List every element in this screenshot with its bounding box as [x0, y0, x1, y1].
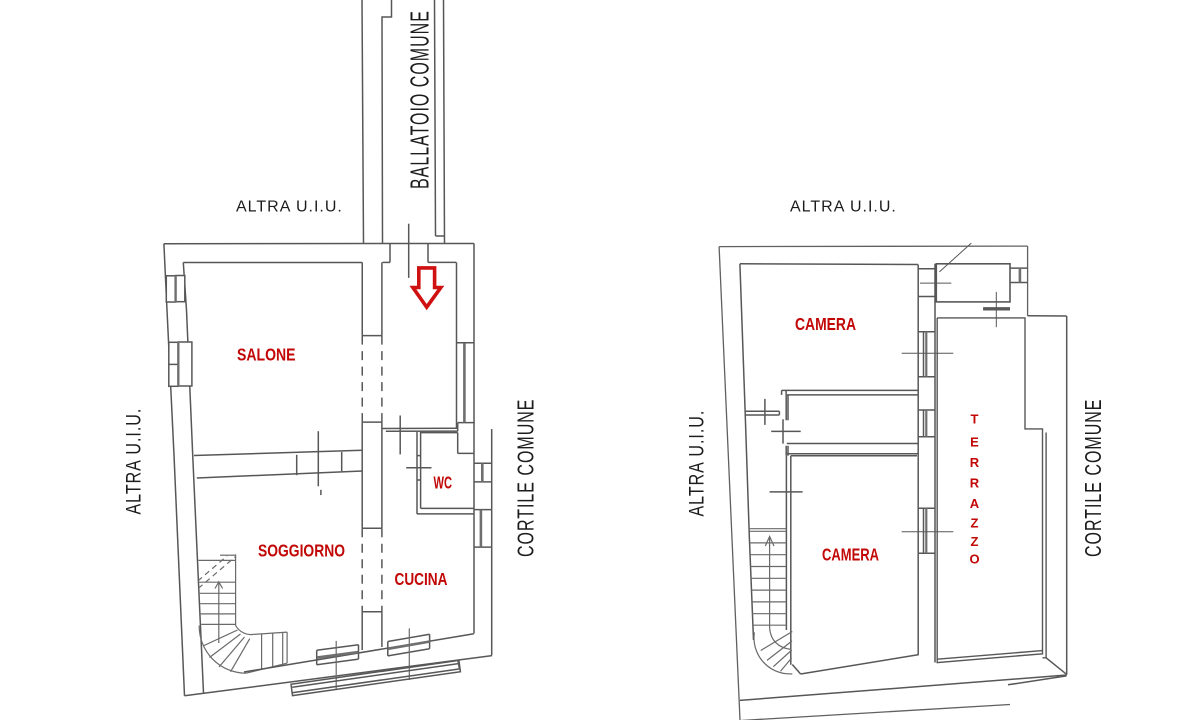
svg-text:A: A [970, 496, 980, 511]
svg-text:ALTRA U.I.U.: ALTRA U.I.U. [790, 199, 897, 216]
svg-text:SOGGIORNO: SOGGIORNO [258, 541, 345, 561]
svg-text:ALTRA U.I.U.: ALTRA U.I.U. [121, 408, 145, 515]
svg-text:BALLATOIO COMUNE: BALLATOIO COMUNE [406, 10, 435, 189]
svg-text:Z: Z [971, 534, 979, 549]
svg-text:O: O [969, 552, 979, 567]
svg-text:CUCINA: CUCINA [395, 569, 448, 589]
svg-text:ALTRA U.I.U.: ALTRA U.I.U. [236, 199, 343, 216]
svg-text:ALTRA U.I.U.: ALTRA U.I.U. [684, 410, 708, 517]
svg-text:CORTILE COMUNE: CORTILE COMUNE [1081, 399, 1106, 557]
svg-text:SALONE: SALONE [237, 345, 296, 365]
svg-text:E: E [970, 435, 979, 450]
svg-text:R: R [970, 476, 980, 491]
svg-text:Z: Z [971, 516, 979, 531]
svg-text:CORTILE COMUNE: CORTILE COMUNE [514, 399, 539, 557]
svg-text:WC: WC [434, 473, 453, 493]
svg-text:T: T [971, 412, 979, 427]
svg-text:R: R [970, 455, 980, 470]
svg-text:CAMERA: CAMERA [795, 314, 856, 334]
svg-text:CAMERA: CAMERA [822, 545, 879, 565]
